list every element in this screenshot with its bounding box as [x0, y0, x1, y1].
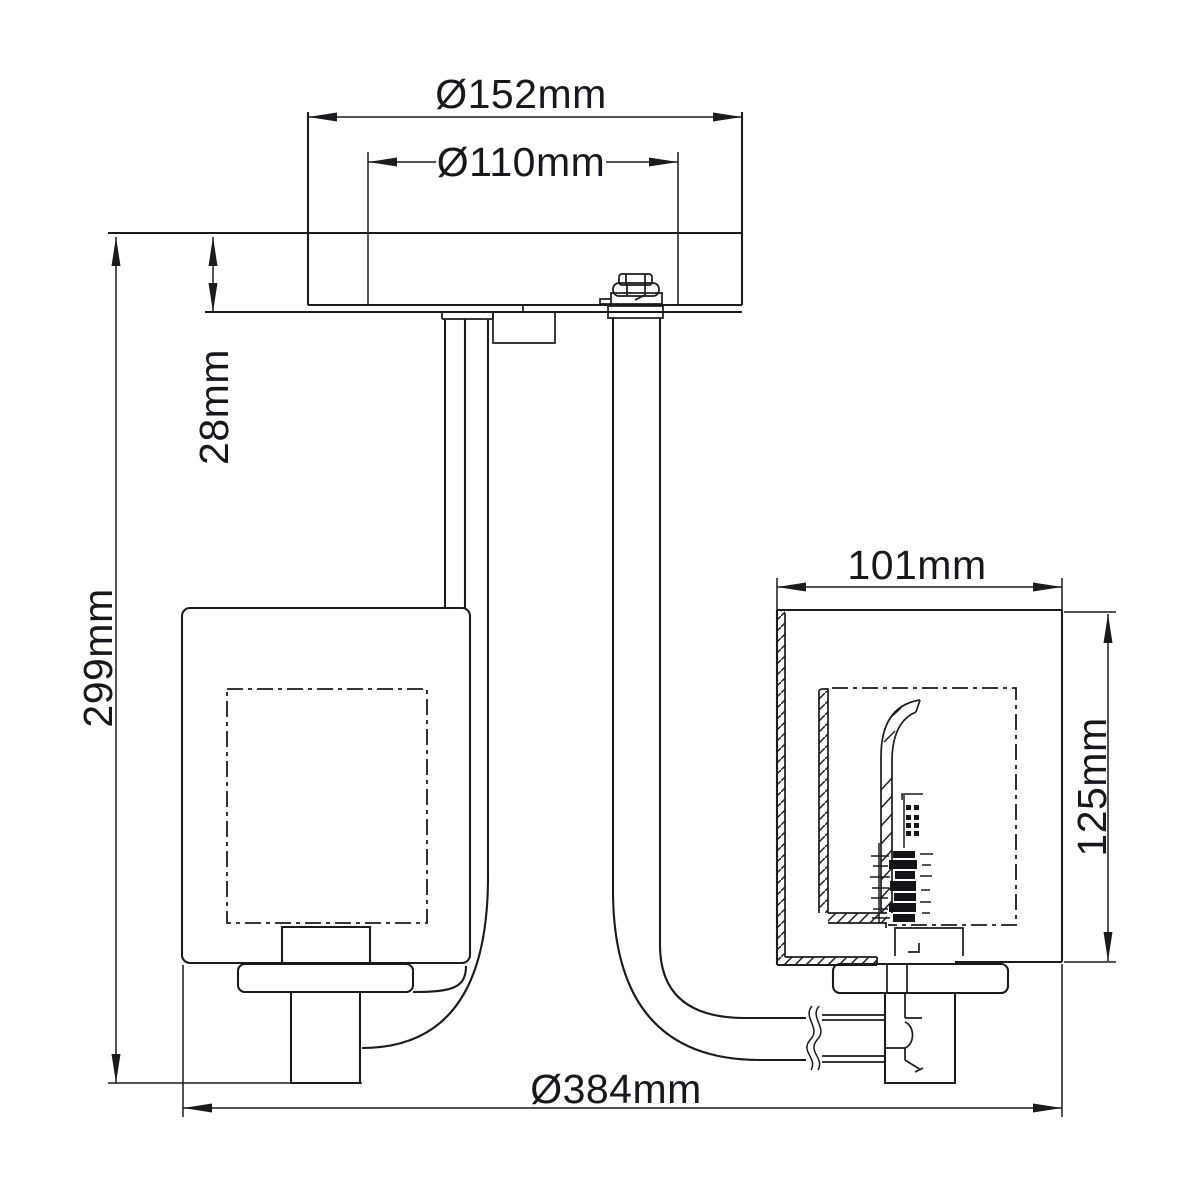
- dim-label-shade-width: 101mm: [847, 542, 986, 588]
- dim-label-overall-width: Ø384mm: [530, 1066, 702, 1112]
- dimension-canopy-diameter: Ø152mm: [308, 71, 742, 122]
- left-arm-cup: [291, 992, 360, 1083]
- dim-label-canopy-diameter: Ø152mm: [435, 71, 607, 117]
- left-shade-diffuser-outline: [227, 689, 427, 923]
- dim-label-canopy-inner-diameter: Ø110mm: [437, 139, 606, 185]
- left-wall-hatch: [777, 611, 785, 963]
- dim-label-canopy-height: 28mm: [191, 349, 237, 465]
- arm-break-symbol: [807, 1006, 821, 1070]
- canopy: [108, 112, 742, 312]
- dim-label-overall-height: 299mm: [75, 588, 121, 727]
- dim-label-shade-height: 125mm: [1069, 717, 1115, 856]
- dimension-canopy-inner-diameter: Ø110mm: [368, 139, 678, 185]
- led-module: [902, 794, 923, 848]
- left-downrod: [445, 319, 465, 608]
- left-lamp-holder: [282, 927, 370, 963]
- right-socket-plate: [833, 964, 1008, 993]
- dimension-shade-height: 125mm: [1064, 612, 1116, 962]
- center-connector: [493, 312, 555, 343]
- technical-drawing: Ø152mm Ø110mm 28mm 299mm 101mm 125mm: [0, 0, 1200, 1200]
- dimension-shade-width: 101mm: [777, 542, 1062, 610]
- right-socket-cup: [886, 923, 963, 956]
- dimension-overall-width: Ø384mm: [183, 964, 1062, 1117]
- right-arm: [613, 318, 885, 1062]
- light-fixture-dimension-drawing: Ø152mm Ø110mm 28mm 299mm 101mm 125mm: [0, 0, 1200, 1200]
- lamp-socket-stack: [870, 843, 933, 923]
- left-socket-plate: [238, 964, 413, 992]
- right-arm-cup: [885, 965, 955, 1083]
- dimension-canopy-height: 28mm: [191, 237, 237, 465]
